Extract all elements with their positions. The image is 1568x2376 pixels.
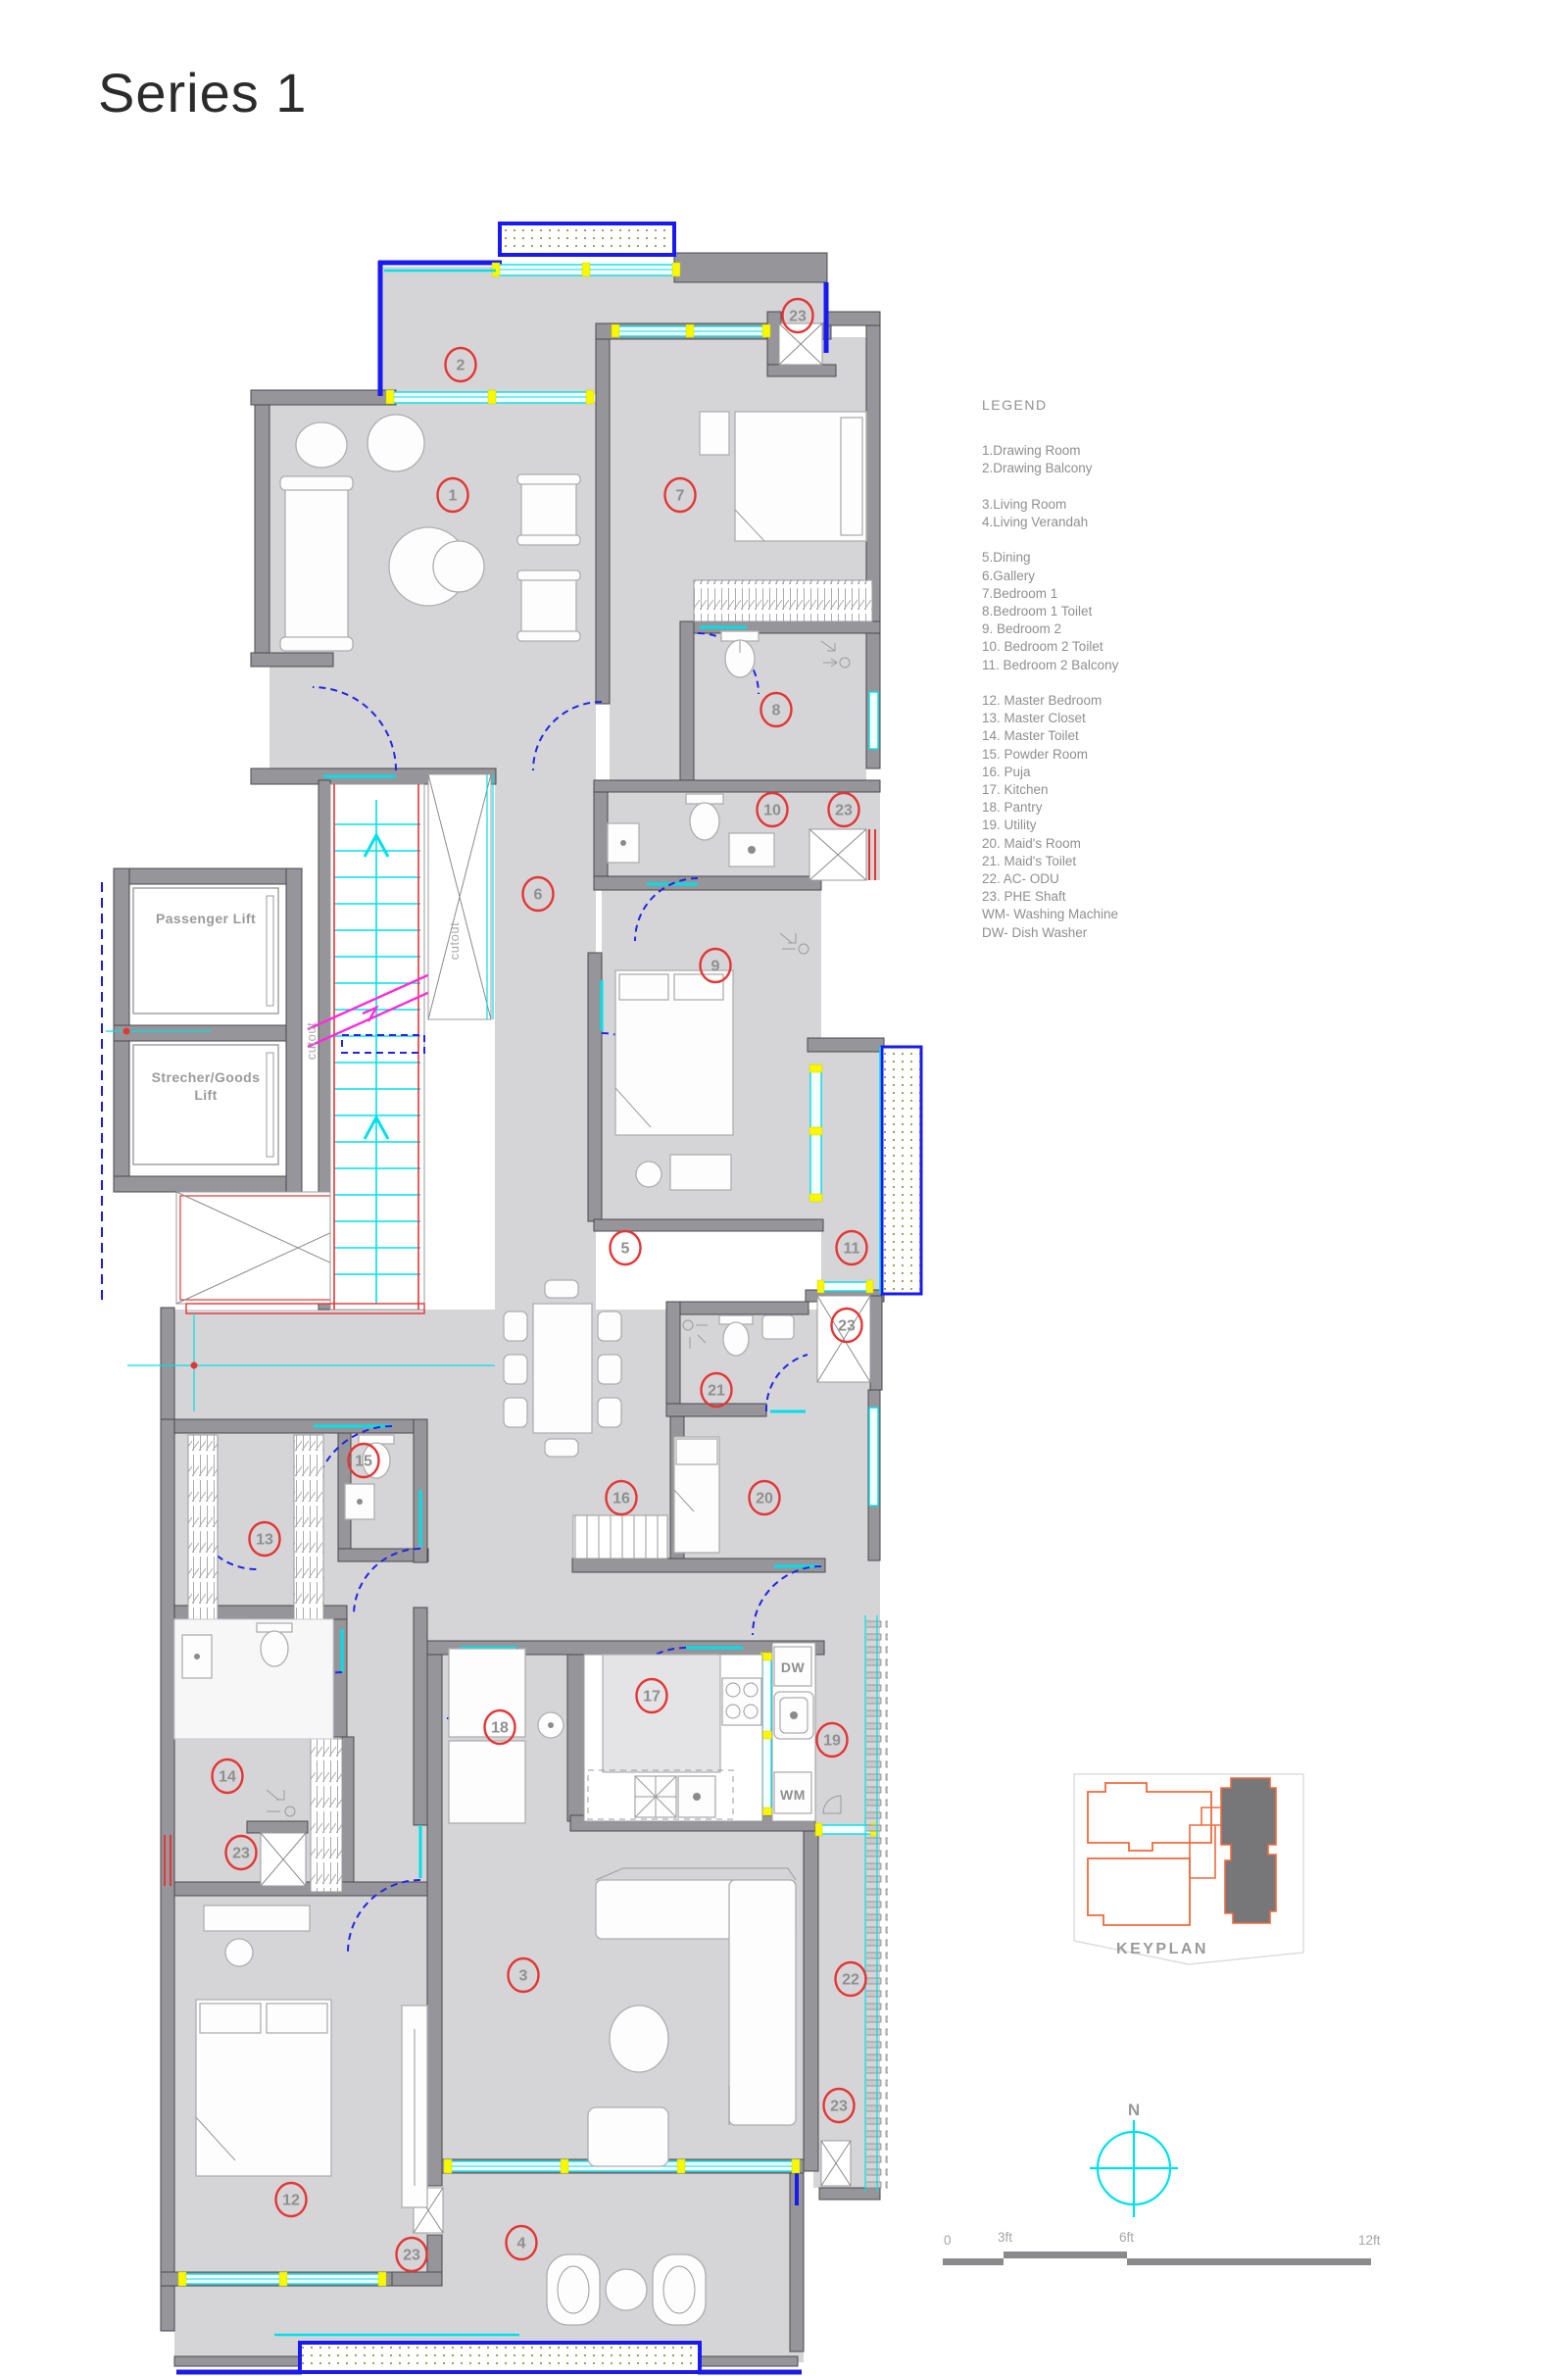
window [817, 1280, 873, 1293]
cutout-label-left: cutout [304, 1022, 318, 1060]
wash-basin [762, 1315, 794, 1339]
sofa [285, 483, 348, 644]
svg-text:18: 18 [491, 1720, 509, 1737]
goods-lift-label-2: Lift [194, 1087, 217, 1103]
dining-chair [545, 1439, 578, 1457]
svg-text:9: 9 [711, 959, 720, 975]
passenger-lift-cab [133, 888, 278, 1014]
north-label: N [1128, 2101, 1140, 2119]
round-chair [367, 415, 424, 471]
pouf [588, 2107, 668, 2166]
shaft-box [261, 1833, 306, 1886]
dining-table [533, 1304, 592, 1433]
bedside-table [700, 412, 729, 455]
dresser [670, 1155, 731, 1190]
svg-text:1: 1 [449, 488, 458, 505]
svg-text:17: 17 [643, 1689, 661, 1706]
kitchen-sink-unit [635, 1776, 715, 1817]
svg-text:13: 13 [256, 1532, 273, 1549]
scale-3ft: 3ft [998, 2230, 1012, 2245]
keyplan: KEYPLAN [1074, 1774, 1303, 1964]
svg-text:11: 11 [844, 1241, 860, 1258]
keyplan-unit-outline [1088, 1783, 1211, 1851]
svg-text:23: 23 [830, 2099, 848, 2115]
window [386, 390, 594, 404]
window [869, 692, 878, 749]
svg-text:22: 22 [842, 1972, 859, 1989]
svg-text:DW: DW [781, 1659, 806, 1675]
north-arrow: N [1090, 2101, 1178, 2217]
shaft-box [809, 829, 866, 880]
side-planter [882, 1047, 921, 1294]
svg-text:3: 3 [519, 1968, 528, 1985]
shaft-box [821, 2141, 851, 2186]
svg-text:12: 12 [282, 2193, 300, 2209]
window [492, 263, 680, 276]
passenger-lift-label: Passenger Lift [156, 911, 256, 926]
svg-text:23: 23 [838, 1318, 856, 1335]
keyplan-unit-outline [1088, 1858, 1190, 1925]
svg-text:5: 5 [621, 1241, 630, 1258]
puja-steps [573, 1515, 667, 1559]
lounge-chair [547, 2254, 600, 2325]
scale-12ft: 12ft [1358, 2233, 1381, 2248]
svg-text:23: 23 [232, 1846, 250, 1862]
round-table [610, 2005, 668, 2072]
scale-6ft: 6ft [1119, 2230, 1134, 2245]
gas-hob [722, 1678, 761, 1725]
dishwasher: DW [774, 1647, 811, 1686]
svg-text:16: 16 [612, 1491, 630, 1508]
svg-text:23: 23 [789, 309, 807, 325]
svg-text:WM: WM [780, 1787, 806, 1803]
round-table [606, 2269, 647, 2310]
svg-text:8: 8 [772, 703, 781, 719]
svg-text:4: 4 [517, 2236, 526, 2252]
ac-odu-louvers [865, 1615, 888, 2192]
dining-chair [545, 1280, 578, 1298]
window [612, 324, 770, 337]
wardrobe [311, 1739, 342, 1892]
floorplan-sheet: { "title": "Series 1", "legend": { "head… [0, 0, 1568, 2376]
svg-text:19: 19 [823, 1733, 841, 1750]
round-chair [296, 422, 347, 468]
kitchen-island [603, 1655, 720, 1772]
floor-plan-drawing: Passenger Lift Strecher/Goods Lift cutou [0, 0, 1568, 2376]
svg-text:7: 7 [676, 488, 685, 505]
svg-text:23: 23 [403, 2248, 420, 2264]
kitchen-sink [774, 1692, 813, 1739]
shaft-box [779, 323, 822, 365]
stool [636, 1162, 661, 1187]
room-marker-5: 5 [611, 1231, 641, 1264]
wardrobe [694, 580, 872, 621]
keyplan-highlighted-unit [1221, 1778, 1276, 1923]
svg-text:2: 2 [457, 358, 465, 374]
svg-text:10: 10 [763, 803, 781, 819]
sofa [729, 1880, 796, 2125]
svg-text:21: 21 [708, 1383, 725, 1400]
svg-text:20: 20 [756, 1491, 773, 1508]
window [809, 1064, 822, 1202]
svg-text:23: 23 [835, 803, 853, 819]
keyplan-caption: KEYPLAN [1116, 1941, 1208, 1957]
svg-text:15: 15 [355, 1454, 372, 1470]
stool [225, 1939, 253, 1966]
goods-lift-label-1: Strecher/Goods [152, 1069, 261, 1085]
window [869, 1408, 878, 1506]
top-planter [500, 223, 674, 255]
dresser [204, 1906, 310, 1931]
lounge-chair [653, 2254, 706, 2325]
cutout-label-right: cutout [447, 922, 462, 960]
svg-text:6: 6 [534, 887, 543, 904]
window [178, 2272, 386, 2286]
scale-bar: 0 3ft 6ft 12ft [943, 2230, 1381, 2265]
svg-text:14: 14 [219, 1769, 236, 1786]
scale-0: 0 [944, 2233, 952, 2248]
armchair [517, 474, 580, 545]
washing-machine: WM [774, 1772, 811, 1813]
armchair [517, 570, 580, 641]
bottom-planter [300, 2343, 700, 2372]
goods-lift-cab [133, 1045, 278, 1164]
